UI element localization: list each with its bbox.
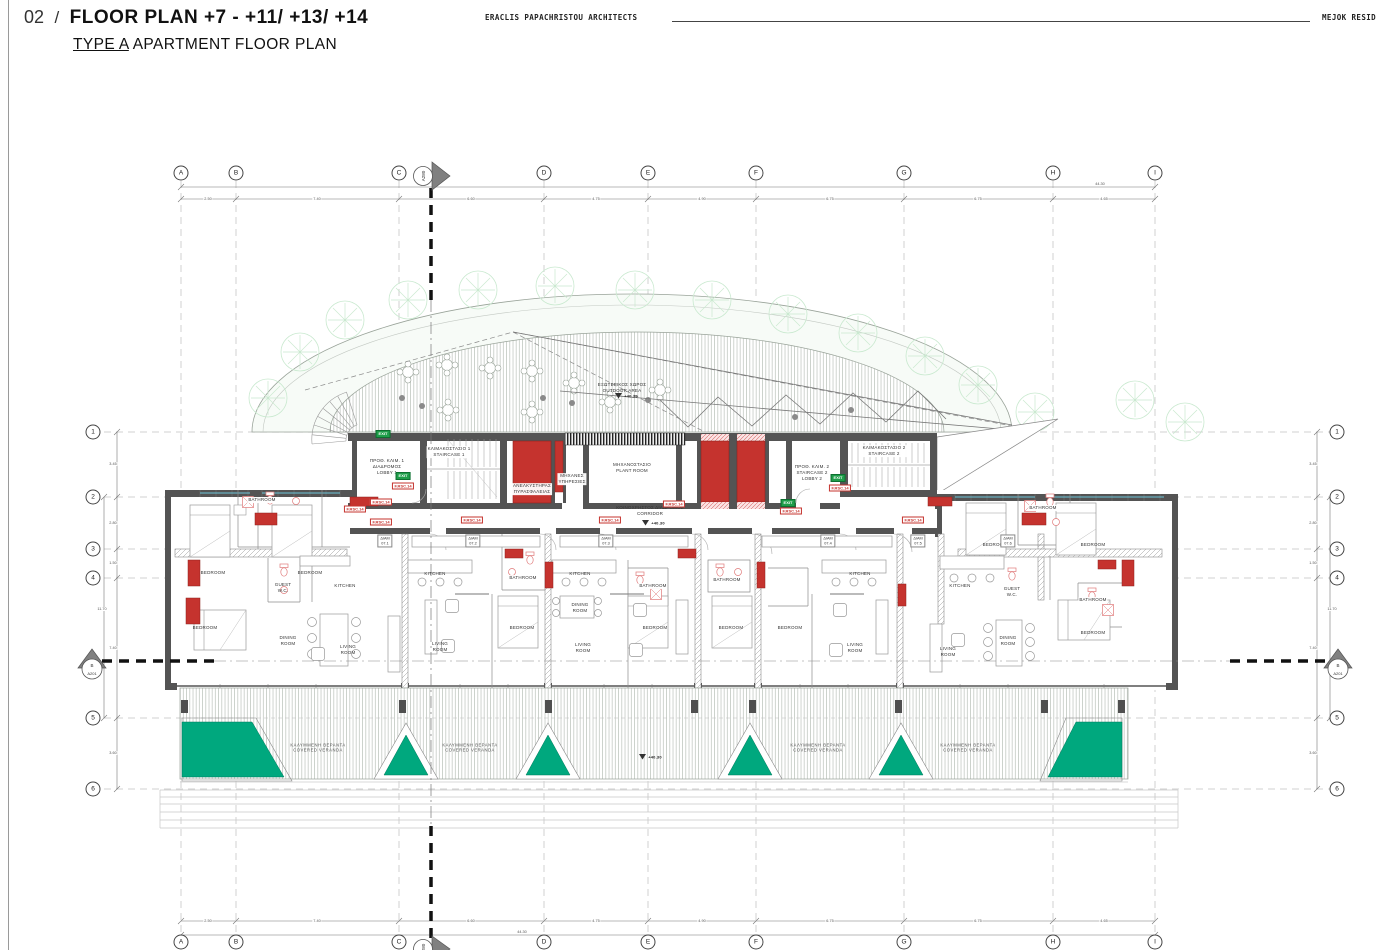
plant-room-grille bbox=[565, 433, 685, 445]
roof-terrace-landscape bbox=[249, 267, 1204, 444]
svg-text:B: B bbox=[1336, 663, 1339, 668]
ground-paving bbox=[160, 790, 1178, 828]
floor-plan-drawing: A280 A280 B A201 B A201 bbox=[0, 0, 1383, 950]
svg-text:A201: A201 bbox=[87, 671, 97, 676]
veranda-deck bbox=[180, 688, 1128, 782]
section-marker-right: B A201 bbox=[1324, 649, 1352, 679]
svg-text:B: B bbox=[90, 663, 93, 668]
section-marker-left: B A201 bbox=[78, 649, 106, 679]
corridor-floor bbox=[348, 509, 937, 528]
svg-text:A201: A201 bbox=[1333, 671, 1343, 676]
section-marker-label: A280 bbox=[421, 170, 426, 181]
section-marker-bottom: A280 bbox=[414, 936, 451, 950]
section-marker-top: A280 bbox=[414, 162, 451, 190]
sheet: { "header": { "number": "02", "separator… bbox=[0, 0, 1383, 950]
svg-text:A280: A280 bbox=[421, 943, 426, 950]
